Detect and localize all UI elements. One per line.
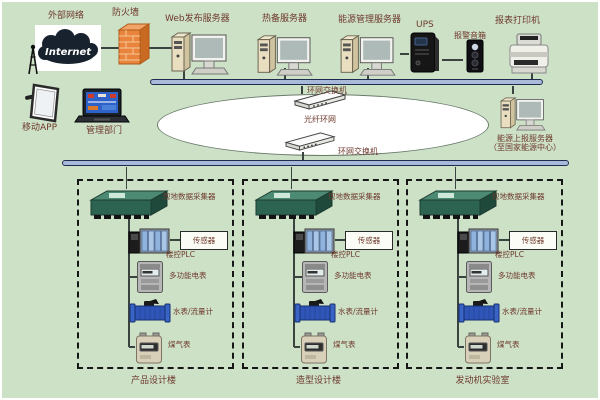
mgmt-dept-label: 管理部门 bbox=[86, 126, 122, 136]
report-server-name: 能源上报服务器 bbox=[470, 134, 580, 143]
antenna-icon bbox=[24, 44, 42, 76]
plc-label: 楼控PLC bbox=[331, 251, 360, 260]
gas-meter-label: 煤气表 bbox=[497, 341, 520, 350]
power-meter-icon bbox=[136, 260, 164, 294]
fiber-ring-label: 光纤环网 bbox=[304, 115, 336, 124]
firewall-icon bbox=[116, 22, 152, 68]
sensor-label: 传感器 bbox=[193, 235, 216, 246]
web-server-icon bbox=[168, 28, 232, 79]
external-network-label: 外部网络 bbox=[48, 11, 84, 21]
water-meter-icon bbox=[294, 297, 336, 325]
mobile-app-label: 移动APP bbox=[22, 123, 57, 133]
gas-meter-label: 煤气表 bbox=[333, 341, 356, 350]
alarm-speaker-icon bbox=[463, 38, 487, 74]
firewall-label: 防火墙 bbox=[112, 8, 139, 18]
energy-mgmt-server-icon bbox=[336, 31, 400, 80]
hot-standby-server-icon bbox=[253, 31, 317, 80]
connector-plc-sensor bbox=[170, 239, 180, 241]
building-box-3: 现地数据采集器 楼控PLC 传感器 多功能电表 水表/流量计 煤气表 bbox=[406, 179, 563, 369]
power-meter-label: 多功能电表 bbox=[498, 272, 536, 281]
collector-icon bbox=[414, 188, 498, 222]
report-printer-label: 报表打印机 bbox=[495, 16, 540, 26]
water-meter-icon bbox=[129, 297, 171, 325]
energy-mgmt-server-label: 能源管理服务器 bbox=[338, 15, 401, 25]
collector-label: 现地数据采集器 bbox=[163, 193, 216, 202]
water-meter-icon bbox=[458, 297, 500, 325]
report-server-icon bbox=[493, 94, 553, 134]
connector-plc-sensor bbox=[335, 239, 345, 241]
report-printer-icon bbox=[504, 32, 554, 79]
internet-cloud-text: Internet bbox=[45, 47, 92, 58]
plc-icon bbox=[293, 227, 335, 255]
building-name-3: 发动机实验室 bbox=[406, 376, 559, 386]
connector-ups-speaker bbox=[442, 59, 463, 61]
sensor-label: 传感器 bbox=[358, 235, 381, 246]
connector-plc-sensor bbox=[499, 239, 509, 241]
gas-meter-label: 煤气表 bbox=[168, 341, 191, 350]
ups-icon bbox=[408, 30, 442, 74]
power-meter-icon bbox=[301, 260, 329, 294]
sensor-box: 传感器 bbox=[180, 231, 228, 250]
ring-switch-bottom-label: 环网交换机 bbox=[338, 147, 378, 156]
collector-icon bbox=[85, 188, 169, 222]
water-meter-label: 水表/流量计 bbox=[338, 308, 378, 317]
power-meter-icon bbox=[465, 260, 493, 294]
power-meter-label: 多功能电表 bbox=[334, 272, 372, 281]
collector-icon bbox=[250, 188, 334, 222]
building-box-1: 现地数据采集器 楼控PLC 传感器 多功能电表 水表/流量计 煤气表 bbox=[77, 179, 234, 369]
mgmt-dept-icon bbox=[74, 88, 130, 126]
report-server-dest: （至国家能源中心） bbox=[462, 143, 588, 152]
hot-standby-server-label: 热备服务器 bbox=[262, 14, 307, 24]
sensor-label: 传感器 bbox=[522, 235, 545, 246]
building-name-1: 产品设计楼 bbox=[77, 376, 230, 386]
gas-meter-icon bbox=[463, 332, 493, 365]
plc-label: 楼控PLC bbox=[166, 251, 195, 260]
power-meter-label: 多功能电表 bbox=[169, 272, 207, 281]
web-server-label: Web发布服务器 bbox=[165, 14, 230, 24]
water-meter-label: 水表/流量计 bbox=[173, 308, 213, 317]
sensor-box: 传感器 bbox=[345, 231, 393, 250]
internet-cloud-icon: Internet bbox=[35, 25, 101, 71]
collector-label: 现地数据采集器 bbox=[492, 193, 545, 202]
diagram-canvas: 环网交换机 光纤环网 环网交换机 外部网络 Internet 防火墙 bbox=[0, 0, 600, 400]
gas-meter-icon bbox=[134, 332, 164, 365]
connector-bus-reportserver bbox=[512, 86, 514, 94]
sensor-box: 传感器 bbox=[509, 231, 557, 250]
connector-switch-bottom-bus bbox=[302, 152, 304, 160]
mobile-app-icon bbox=[24, 82, 62, 124]
water-meter-label: 水表/流量计 bbox=[502, 308, 542, 317]
collector-label: 现地数据采集器 bbox=[328, 193, 381, 202]
plc-icon bbox=[457, 227, 499, 255]
gas-meter-icon bbox=[299, 332, 329, 365]
plc-icon bbox=[128, 227, 170, 255]
building-box-2: 现地数据采集器 楼控PLC 传感器 多功能电表 水表/流量计 煤气表 bbox=[242, 179, 399, 369]
ups-label: UPS bbox=[416, 20, 434, 30]
ring-switch-bottom-icon bbox=[282, 130, 338, 153]
plc-label: 楼控PLC bbox=[495, 251, 524, 260]
ring-switch-top-label: 环网交换机 bbox=[307, 86, 347, 95]
building-name-2: 造型设计楼 bbox=[242, 376, 395, 386]
bus-bottom bbox=[62, 160, 569, 166]
